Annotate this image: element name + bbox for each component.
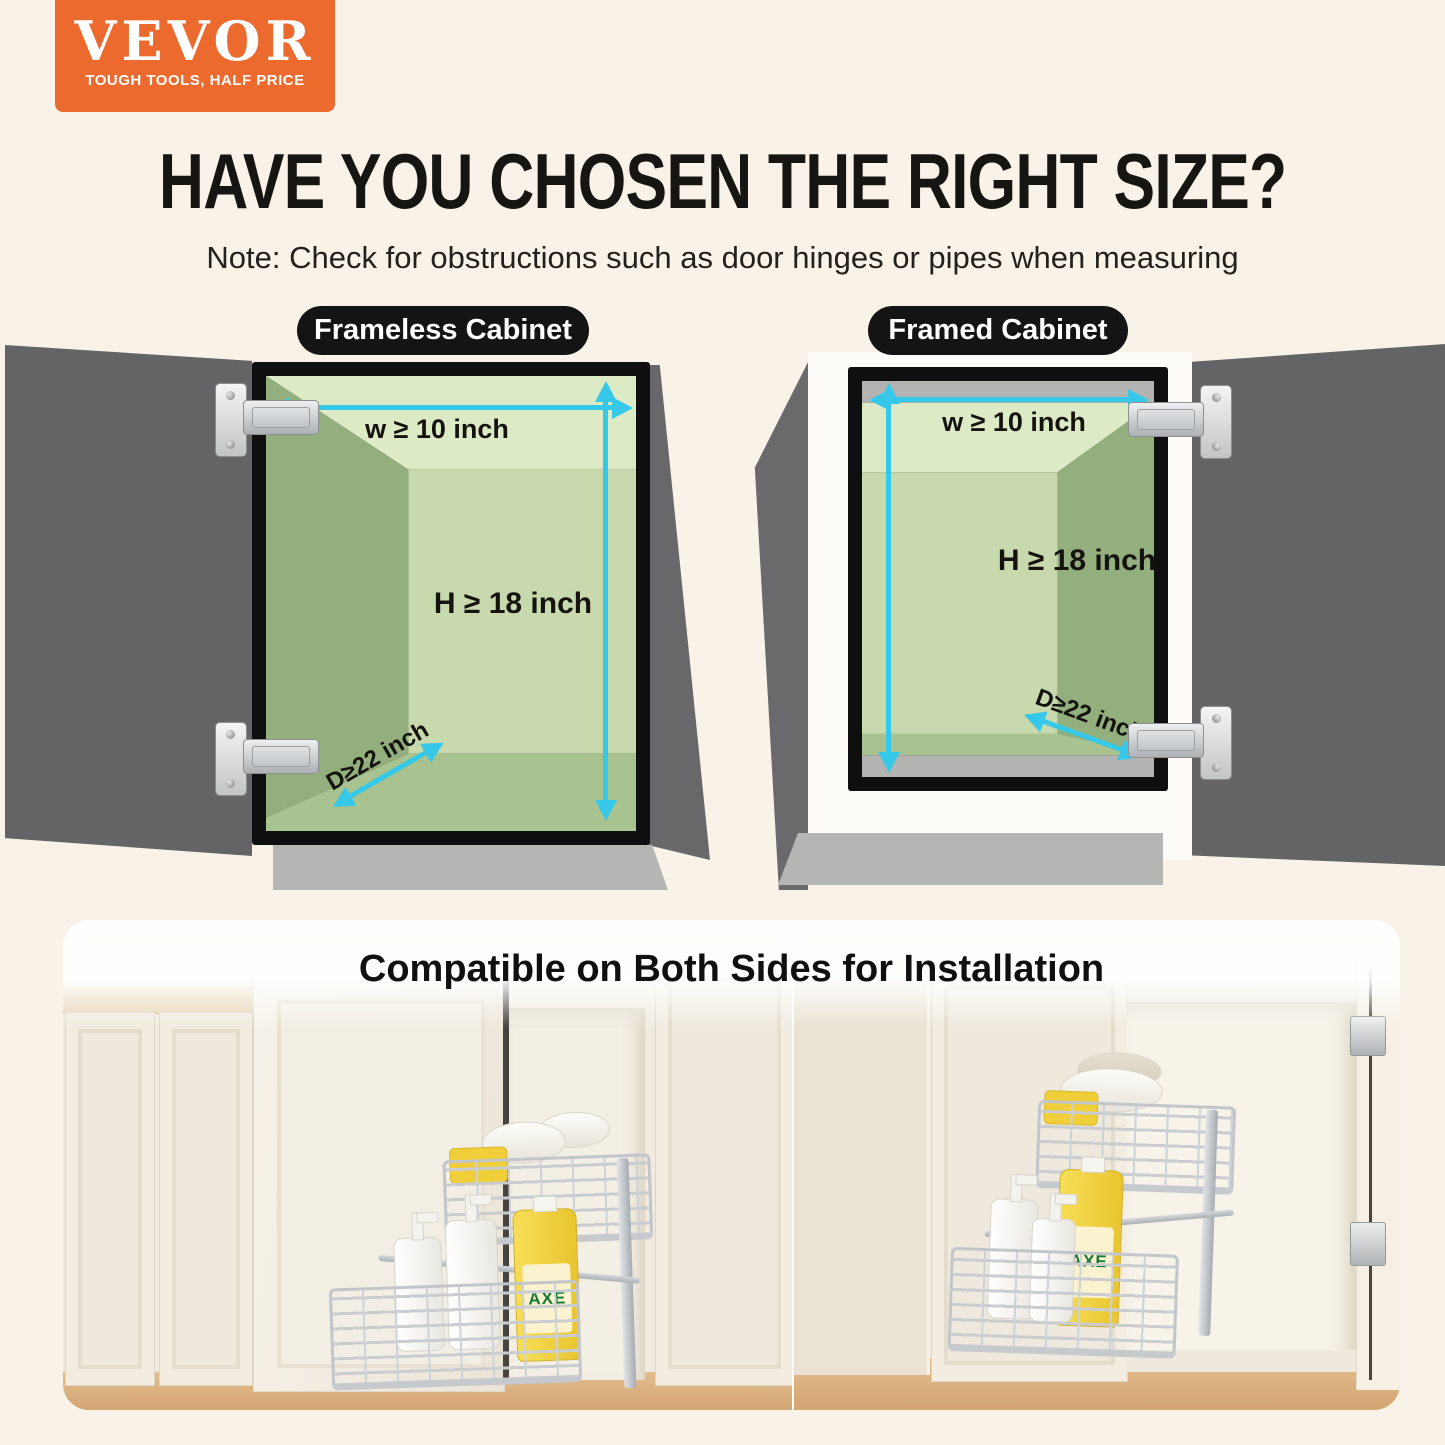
infographic-canvas: VEVOR TOUGH TOOLS, HALF PRICE HAVE YOU C…: [0, 0, 1445, 1445]
hinge-icon: [215, 383, 321, 455]
page-title: HAVE YOU CHOSEN THE RIGHT SIZE?: [0, 142, 1445, 220]
lower-basket: [329, 1280, 582, 1391]
width-arrow: [290, 405, 612, 410]
hinge-arm: [1128, 402, 1204, 437]
width-label: w ≥ 10 inch: [317, 414, 557, 445]
frameless-cabinet-label: Frameless Cabinet: [297, 306, 589, 355]
bottle-cap: [533, 1196, 558, 1213]
closed-cabinet-door: [65, 1012, 155, 1386]
neighbor-cabinet-side: [752, 362, 808, 890]
height-label: H ≥ 18 inch: [977, 544, 1177, 578]
width-arrow: [890, 397, 1128, 402]
cabinet-plinth: [778, 833, 1163, 885]
width-label: w ≥ 10 inch: [894, 407, 1134, 438]
pullout-organizer: AXE: [938, 1047, 1260, 1403]
corner-cabinet-side: [794, 975, 930, 1375]
hinge-icon: [1126, 385, 1232, 457]
door-hinge: [1350, 1222, 1386, 1266]
height-arrow: [886, 404, 891, 752]
hinge-icon: [215, 722, 321, 794]
cabinet-side-panel: [648, 365, 710, 860]
vevor-logo: VEVOR TOUGH TOOLS, HALF PRICE: [55, 0, 335, 112]
pullout-organizer: AXE: [313, 1109, 663, 1410]
hinge-icon: [1126, 706, 1232, 778]
hinge-arm: [1128, 723, 1204, 758]
installation-photos: AXE: [63, 920, 1400, 1410]
bottle-cap: [1081, 1156, 1106, 1173]
brand-wordmark: VEVOR: [55, 12, 335, 70]
framed-cabinet-label: Framed Cabinet: [868, 306, 1128, 355]
hinge-arm: [243, 400, 319, 435]
height-label: H ≥ 18 inch: [413, 587, 613, 621]
hinge-plate: [1200, 385, 1232, 459]
closed-cabinet-door: [159, 1012, 253, 1386]
lower-basket: [948, 1247, 1179, 1359]
hinge-arm: [243, 739, 319, 774]
brand-tagline: TOUGH TOOLS, HALF PRICE: [55, 72, 335, 89]
measuring-note: Note: Check for obstructions such as doo…: [0, 240, 1445, 276]
photos-caption: Compatible on Both Sides for Installatio…: [63, 948, 1400, 991]
cabinet-plinth: [273, 845, 668, 890]
hinge-plate: [1200, 706, 1232, 780]
